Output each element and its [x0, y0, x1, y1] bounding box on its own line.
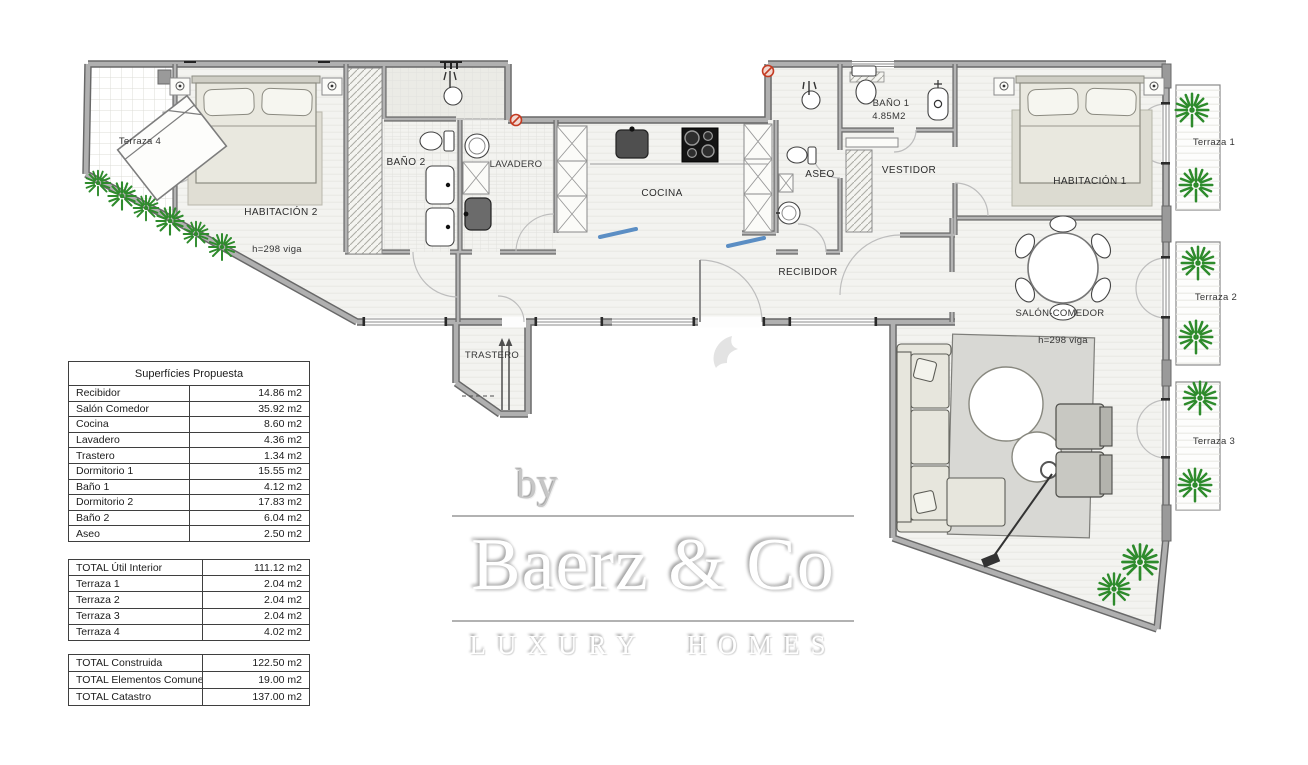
- room-label-cell: Recibidor: [69, 386, 190, 402]
- wardrobe-habitacion2: [348, 68, 382, 254]
- room-value-cell: 6.04 m2: [189, 510, 310, 526]
- table-row: Baño 26.04 m2: [69, 510, 310, 526]
- total-label-cell: Terraza 2: [69, 592, 203, 608]
- red-valve-icon: [511, 115, 522, 126]
- total-value-cell: 111.12 m2: [203, 559, 310, 575]
- room-value-cell: 1.34 m2: [189, 448, 310, 464]
- total-value-cell: 137.00 m2: [203, 689, 310, 706]
- room-value-cell: 2.50 m2: [189, 526, 310, 542]
- cooktop: [682, 128, 718, 162]
- label-habitacion1: HABITACIÓN 1: [1053, 174, 1127, 187]
- room-label-cell: Baño 1: [69, 479, 190, 495]
- total-label-cell: TOTAL Construida: [69, 654, 203, 671]
- table-row: Terraza 12.04 m2: [69, 576, 310, 592]
- toilet-aseo: [787, 147, 816, 164]
- total-label-cell: TOTAL Útil Interior: [69, 559, 203, 575]
- table-row: Recibidor14.86 m2: [69, 386, 310, 402]
- label-terraza3: Terraza 3: [1193, 436, 1235, 447]
- surface-table-title: Superfícies Propuesta: [69, 362, 310, 386]
- table-row: TOTAL Elementos Comunes19.00 m2: [69, 672, 310, 689]
- washer-lavadero: [465, 134, 489, 158]
- label-terraza2: Terraza 2: [1195, 292, 1237, 303]
- total-label-cell: Terraza 1: [69, 576, 203, 592]
- label-lavadero: LAVADERO: [490, 159, 543, 170]
- table-row: Cocina8.60 m2: [69, 417, 310, 433]
- label-vestidor: VESTIDOR: [882, 165, 936, 176]
- vestidor-shelf: [846, 138, 898, 147]
- faint-feather-watermark: [714, 336, 738, 368]
- surface-table: Superfícies Propuesta Recibidor14.86 m2 …: [68, 361, 310, 542]
- table-row: TOTAL Catastro137.00 m2: [69, 689, 310, 706]
- table-row: Terraza 22.04 m2: [69, 592, 310, 608]
- table-row: Terraza 32.04 m2: [69, 608, 310, 624]
- label-viga-right: h=298 viga: [1038, 335, 1088, 346]
- red-valve-icon: [763, 66, 774, 77]
- table-row: Aseo2.50 m2: [69, 526, 310, 542]
- mirror-wardrobe-vestidor: [846, 150, 872, 232]
- room-label-cell: Dormitorio 1: [69, 463, 190, 479]
- total-label-cell: TOTAL Elementos Comunes: [69, 672, 203, 689]
- toilet-bano2: [420, 131, 454, 151]
- room-value-cell: 14.86 m2: [189, 386, 310, 402]
- table-row: TOTAL Útil Interior111.12 m2: [69, 559, 310, 575]
- room-label-cell: Trastero: [69, 448, 190, 464]
- label-terraza4: Terraza 4: [119, 136, 161, 147]
- label-viga-left: h=298 viga: [252, 244, 302, 255]
- total-value-cell: 4.02 m2: [203, 624, 310, 640]
- label-bano2: BAÑO 2: [386, 155, 425, 168]
- label-aseo: ASEO: [805, 169, 834, 180]
- label-habitacion2: HABITACIÓN 2: [244, 205, 318, 218]
- sink-lavadero: [464, 198, 491, 230]
- total-label-cell: TOTAL Catastro: [69, 689, 203, 706]
- room-value-cell: 8.60 m2: [189, 417, 310, 433]
- room-label-cell: Aseo: [69, 526, 190, 542]
- room-label-cell: Baño 2: [69, 510, 190, 526]
- label-bano1: BAÑO 1: [873, 98, 910, 109]
- floor-plan-page: Terraza 4 HABITACIÓN 2 h=298 viga BAÑO 2…: [0, 0, 1308, 765]
- table-row: TOTAL Construida122.50 m2: [69, 654, 310, 671]
- table-row: Terraza 44.02 m2: [69, 624, 310, 640]
- table-row: Dormitorio 115.55 m2: [69, 463, 310, 479]
- total-value-cell: 2.04 m2: [203, 592, 310, 608]
- table-header-row: Superfícies Propuesta: [69, 362, 310, 386]
- room-value-cell: 17.83 m2: [189, 495, 310, 511]
- room-label-cell: Dormitorio 2: [69, 495, 190, 511]
- total-value-cell: 122.50 m2: [203, 654, 310, 671]
- area-tables: Superfícies Propuesta Recibidor14.86 m2 …: [68, 361, 310, 706]
- label-cocina: COCINA: [641, 188, 682, 199]
- total-label-cell: Terraza 4: [69, 624, 203, 640]
- label-terraza1: Terraza 1: [1193, 137, 1235, 148]
- room-label-cell: Cocina: [69, 417, 190, 433]
- total-value-cell: 19.00 m2: [203, 672, 310, 689]
- table-row: Dormitorio 217.83 m2: [69, 495, 310, 511]
- room-label-cell: Lavadero: [69, 432, 190, 448]
- room-value-cell: 35.92 m2: [189, 401, 310, 417]
- table-row: Trastero1.34 m2: [69, 448, 310, 464]
- label-bano1-area: 4.85M2: [872, 111, 906, 122]
- table-row: Baño 14.12 m2: [69, 479, 310, 495]
- kitchen-sink: [616, 126, 648, 158]
- totals-final-table: TOTAL Construida122.50 m2 TOTAL Elemento…: [68, 654, 310, 707]
- label-recibidor: RECIBIDOR: [778, 267, 837, 278]
- totals-interior-table: TOTAL Útil Interior111.12 m2 Terraza 12.…: [68, 559, 310, 641]
- room-label-cell: Salón Comedor: [69, 401, 190, 417]
- room-value-cell: 4.12 m2: [189, 479, 310, 495]
- table-row: Salón Comedor35.92 m2: [69, 401, 310, 417]
- room-value-cell: 15.55 m2: [189, 463, 310, 479]
- room-value-cell: 4.36 m2: [189, 432, 310, 448]
- label-trastero: TRASTERO: [465, 350, 519, 361]
- total-value-cell: 2.04 m2: [203, 576, 310, 592]
- label-salon: SALÓN-COMEDOR: [1016, 308, 1105, 319]
- total-label-cell: Terraza 3: [69, 608, 203, 624]
- total-value-cell: 2.04 m2: [203, 608, 310, 624]
- table-row: Lavadero4.36 m2: [69, 432, 310, 448]
